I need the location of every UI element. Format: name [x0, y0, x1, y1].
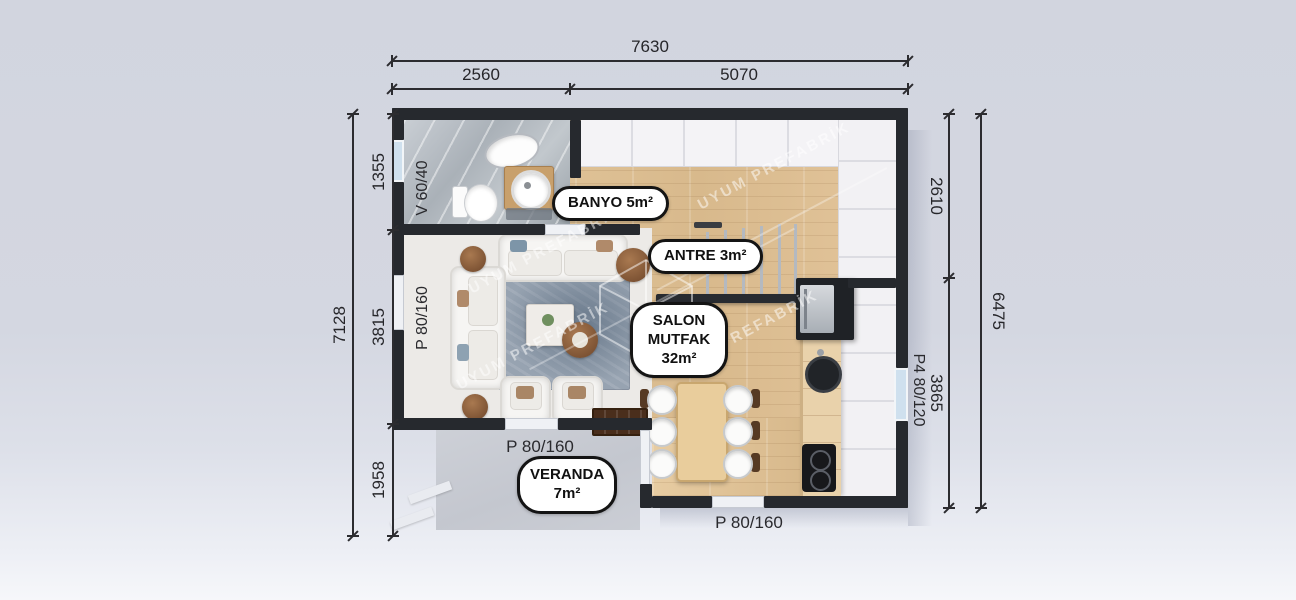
- sofa-left: [450, 266, 506, 390]
- side-table: [462, 394, 488, 420]
- sofa-top: [498, 234, 628, 282]
- salon-label-line: SALON: [643, 312, 715, 331]
- fridge-handle: [804, 289, 807, 329]
- banyo-mat: [506, 208, 552, 220]
- window-p4-80120: [894, 368, 908, 421]
- dim-value: 1958: [369, 461, 389, 499]
- veranda-label-line: VERANDA: [530, 466, 604, 485]
- wall-kitchen-bottom: [652, 496, 712, 508]
- label-door-kitchen: P 80/160: [715, 513, 783, 533]
- dining-table: [676, 382, 728, 482]
- veranda-label-line: 7m²: [530, 485, 604, 504]
- dim-right-total: 6475: [980, 114, 982, 508]
- label-door-veranda: P 80/160: [506, 437, 574, 457]
- coffee-table-plant: [542, 314, 554, 326]
- railing-rod: [778, 224, 781, 296]
- wall-salon-bottom: [392, 418, 505, 430]
- coat-hook-shelf: [694, 222, 722, 228]
- label-window-right: P4 80/120: [909, 354, 927, 427]
- armchair: [500, 376, 551, 424]
- banyo-faucet: [524, 182, 531, 189]
- dining-chair: [723, 385, 753, 415]
- wall-banyo-bottom: [585, 224, 640, 235]
- dim-left-total: 7128: [352, 114, 354, 536]
- dining-chair: [723, 417, 753, 447]
- wall-step-stub: [640, 484, 652, 508]
- round-stool-top: [572, 332, 588, 348]
- banyo-door-sill: [545, 224, 585, 235]
- kitchen-door-sill: [712, 496, 764, 508]
- toilet-bowl: [464, 184, 498, 222]
- dim-value: 6475: [988, 292, 1008, 330]
- label-window-v6040: V 60/40: [414, 160, 432, 215]
- wall-fridge-stub: [848, 278, 896, 288]
- dim-top-segments: 2560 5070: [392, 88, 908, 90]
- wall-top: [392, 108, 908, 120]
- dim-value: 3815: [369, 308, 389, 346]
- veranda-glass-panel: [640, 430, 650, 486]
- kitchen-faucet: [817, 349, 824, 356]
- dining-chair: [723, 449, 753, 479]
- dim-value: 3865: [926, 374, 946, 412]
- dining-chair: [647, 385, 677, 415]
- salon-label-line: MUTFAK: [643, 331, 715, 350]
- side-table: [460, 246, 486, 272]
- salon-label-line: 32m²: [643, 350, 715, 369]
- dim-value: 5070: [720, 65, 758, 85]
- room-label-salon: SALON MUTFAK 32m²: [630, 302, 728, 378]
- dim-right-segments: 2610 3865: [948, 114, 950, 508]
- dim-value: 2610: [926, 177, 946, 215]
- room-label-antre: ANTRE 3m²: [648, 239, 763, 274]
- cooktop-burner: [810, 450, 831, 471]
- wall-kitchen-bottom: [764, 496, 908, 508]
- floor-plan-canvas: UYUM PREFABRİK UYUM PREFABRİK UYUM PREFA…: [0, 0, 1296, 600]
- building-shadow: [660, 508, 908, 528]
- room-label-banyo: BANYO 5m²: [552, 186, 669, 221]
- dim-value: 7128: [330, 306, 350, 344]
- label-door-left: P 80/160: [414, 286, 432, 350]
- kitchen-sink: [805, 356, 842, 393]
- banyo-sink: [511, 170, 551, 210]
- dim-value: 7630: [631, 37, 669, 57]
- wall-salon-bottom: [558, 418, 652, 430]
- wall-right: [896, 108, 908, 368]
- side-table: [616, 248, 650, 282]
- wall-banyo-bottom: [392, 224, 545, 235]
- veranda-door-sill: [505, 418, 558, 430]
- dim-left-segments: 1355 3815 1958: [392, 114, 394, 536]
- dim-value: 2560: [462, 65, 500, 85]
- cooktop-burner: [810, 470, 831, 491]
- veranda-step: [390, 507, 434, 531]
- room-label-veranda: VERANDA 7m²: [517, 456, 617, 514]
- dining-chair: [647, 449, 677, 479]
- wall-right: [896, 421, 908, 508]
- dim-value: 1355: [369, 153, 389, 191]
- dim-top-total: 7630: [392, 60, 908, 62]
- wall-banyo-right-stub: [570, 120, 581, 178]
